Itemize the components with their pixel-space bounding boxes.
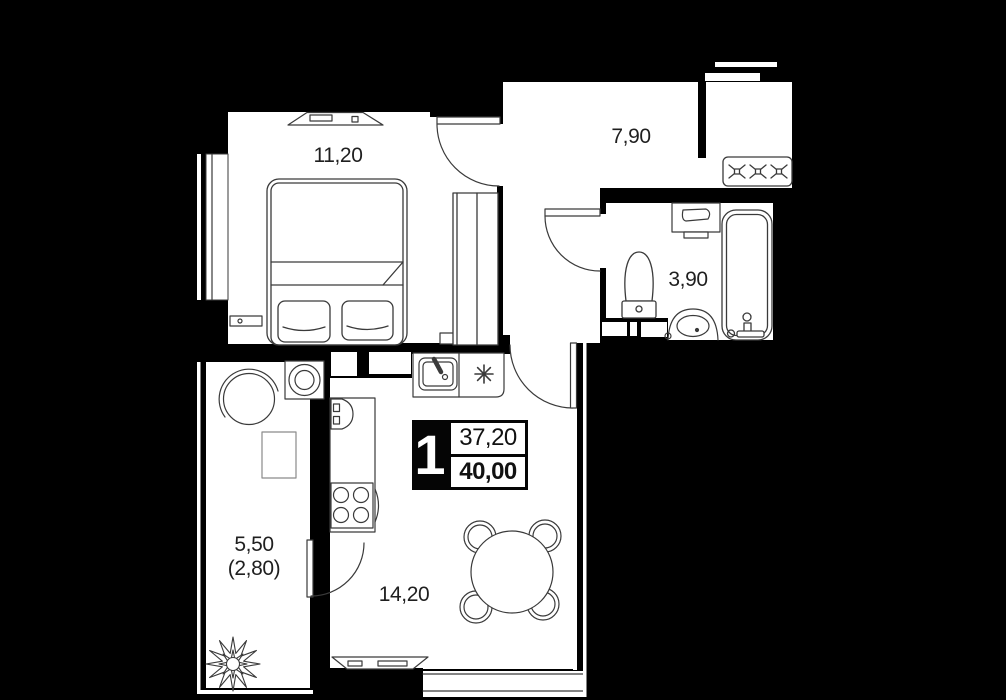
hallway-closet [723, 157, 792, 186]
floor-plan: 11,20 7,90 3,90 14,20 5,50 (2,80) 1 37,2… [0, 0, 1006, 700]
living-area-value: 37,20 [451, 423, 525, 454]
kitchen-sink [419, 358, 457, 390]
entrance-door [705, 62, 777, 81]
bedroom-area-label: 11,20 [314, 144, 363, 168]
pillow [342, 301, 393, 340]
vent-shaft [602, 322, 667, 337]
nightstand [230, 316, 262, 326]
floor-plan-drawing [0, 0, 1006, 700]
bathroom-area-label: 3,90 [668, 268, 707, 292]
water-heater [331, 399, 353, 429]
kitchen-living-area-label: 14,20 [379, 583, 430, 607]
balcony-area-label: 5,50 [234, 533, 273, 557]
bedroom-doorway [497, 124, 504, 186]
dining-set [460, 520, 561, 623]
bathroom-doorway [598, 214, 607, 268]
pillow [278, 301, 330, 342]
total-area-value: 40,00 [451, 457, 525, 488]
wardrobe [453, 193, 498, 345]
bed [267, 179, 407, 345]
corner-washing-machine [285, 361, 324, 399]
stove-burner-icon [475, 365, 493, 383]
tv-stand-living [332, 657, 428, 669]
hallway-area-label: 7,90 [611, 125, 650, 149]
bathtub [722, 210, 772, 340]
bedroom-window [197, 154, 228, 300]
cooktop-hob [331, 483, 379, 528]
living-room-window [423, 671, 586, 697]
balcony-area-label-secondary: (2,80) [228, 557, 280, 581]
vent-shaft [331, 352, 411, 376]
area-cells: 37,20 40,00 [448, 420, 528, 490]
dining-table [471, 531, 553, 613]
apartment-info-badge: 1 37,20 40,00 [412, 420, 528, 490]
rooms-count: 1 [412, 420, 448, 490]
